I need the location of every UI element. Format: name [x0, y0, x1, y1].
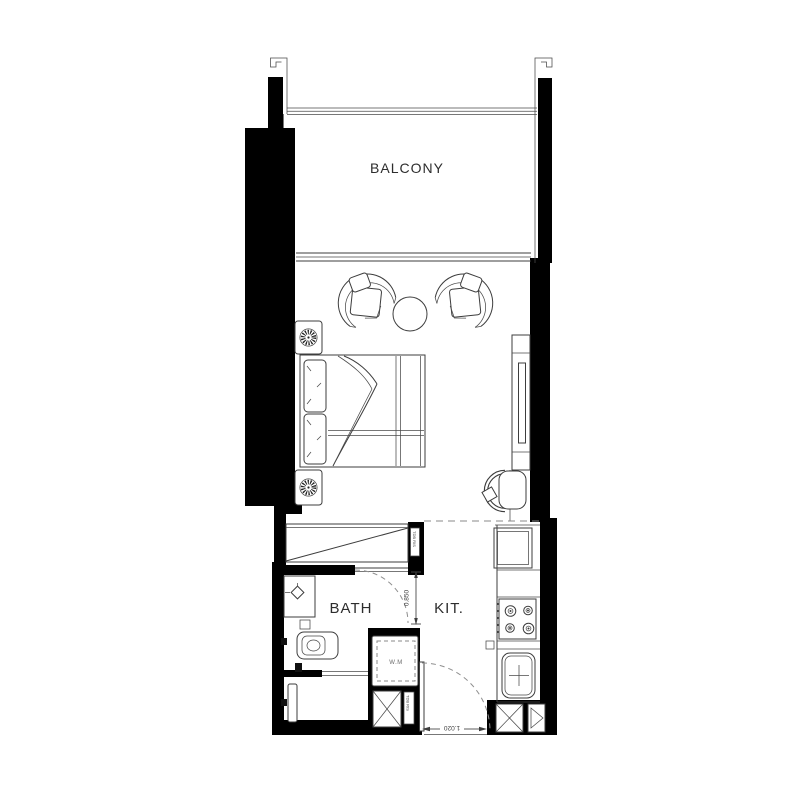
balcony-railing	[287, 108, 537, 114]
entry-door	[420, 662, 491, 735]
wall-bath-top	[282, 565, 355, 575]
coffee-table	[393, 297, 427, 331]
wall-right-kitchen	[540, 518, 557, 735]
washing-machine: W.M	[372, 636, 418, 686]
burner-icon	[505, 606, 534, 634]
riser-label-upper: TDB RIS	[411, 528, 420, 556]
bath-label: BATH	[330, 600, 373, 617]
pillow-bottom	[304, 414, 326, 464]
blanket-fold	[333, 356, 377, 466]
sliding-door	[296, 253, 531, 261]
armchair-right	[429, 262, 504, 334]
kitchen-sink	[502, 653, 535, 698]
bed	[300, 355, 425, 467]
armchair-left	[326, 262, 401, 334]
bath-sink	[284, 576, 315, 617]
dim-entry-door-text: 1.020	[443, 724, 460, 731]
wall-bath-left	[272, 562, 284, 735]
svg-text:TDB RIS: TDB RIS	[406, 695, 411, 711]
pier-right	[538, 78, 552, 263]
stove	[497, 599, 536, 639]
bath-shelf	[300, 620, 310, 629]
washing-machine-label: W.M	[389, 660, 403, 666]
floor-plan: 0.850 W.M TDB RIS TDB RIS	[0, 0, 800, 800]
svg-text:TDB RIS: TDB RIS	[412, 531, 417, 547]
nightstand-top	[295, 321, 322, 354]
dim-bath-passage-text: 0.850	[404, 589, 411, 606]
service-shaft-mid	[373, 691, 401, 727]
wall-left-narrow	[274, 510, 286, 566]
kitchen-label: KIT.	[434, 600, 464, 617]
closet	[286, 524, 408, 562]
toilet	[297, 632, 338, 659]
wall-right-living	[530, 258, 550, 522]
fridge	[494, 528, 532, 568]
wall-left-main	[245, 128, 295, 506]
kitchen-knob	[486, 641, 494, 649]
floor-plan-drawing: 0.850 W.M TDB RIS TDB RIS	[0, 0, 800, 800]
desk-chair	[482, 471, 526, 510]
pier-left	[268, 77, 283, 130]
door-handle	[281, 699, 287, 706]
nightstand-bottom	[295, 470, 322, 505]
balcony-label: BALCONY	[370, 160, 444, 176]
riser-label-lower: TDB RIS	[404, 692, 414, 724]
pillow-top	[304, 360, 326, 412]
bath-fitting-knob	[281, 638, 287, 645]
shaft-bottom-right	[496, 704, 545, 732]
dim-entry-door: 1.020	[422, 724, 487, 731]
dim-bath-passage: 0.850	[404, 571, 422, 625]
wardrobe-unit	[512, 335, 530, 470]
bath-fitting-knob2	[295, 663, 302, 672]
